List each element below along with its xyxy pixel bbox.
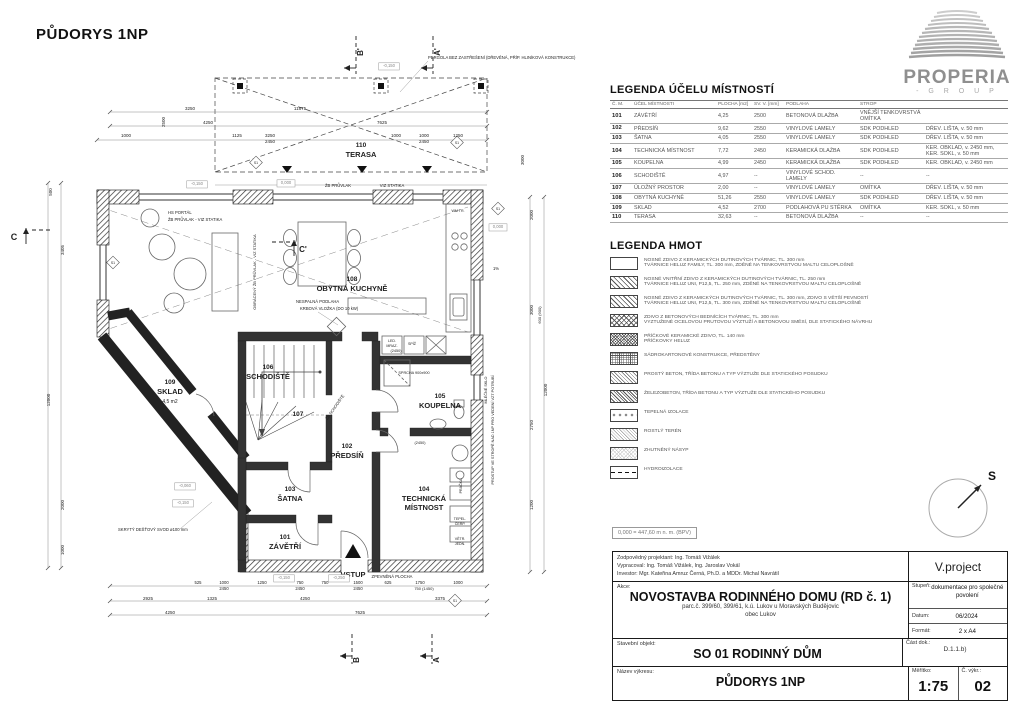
room-label-sklad: SKLAD [157, 387, 183, 396]
floor-plan: 110TERASA108OBYTNÁ KUCHYNĚ109SKLAD4,5 m2… [0, 0, 610, 724]
north-label: S [988, 469, 996, 483]
dim: 1000 [121, 133, 132, 138]
dim: 3000 [520, 154, 525, 165]
room-number-107: 107 [293, 411, 304, 418]
stage-label: Stupeň: [912, 583, 931, 607]
level-marker: -0,150 [383, 63, 396, 68]
stage-cell: Stupeň: dokumentace pro společné povolen… [909, 582, 1007, 609]
pat-grid-swatch [610, 352, 638, 365]
dining-table [298, 222, 346, 286]
room-number-103: 103 [285, 486, 296, 493]
room-label-technicka: TECHNICKÁ [402, 494, 447, 503]
drawing-name-value: PŮDORYS 1NP [617, 675, 904, 689]
dim: 750 [322, 580, 330, 585]
dim: 1250 [257, 580, 267, 585]
hmot-label: SÁDROKARTONOVÉ KONSTRUKCE, PŘEDSTĚNY [644, 352, 760, 358]
room-label-predsin: PŘEDSÍŇ [330, 451, 363, 460]
room-area-sklad: 4,5 m2 [162, 399, 178, 405]
mark-s1: S1 [453, 599, 457, 603]
dim: 2500 [161, 116, 166, 127]
hmot-label: ZDIVO Z BETONOVÝCH BEDNÍCÍCH TVÁRNIC, TL… [644, 314, 872, 326]
dim: 2450 [295, 586, 305, 591]
room-number-105: 105 [435, 393, 446, 400]
dim: 1500 [353, 580, 363, 585]
company-name: V.project [909, 552, 1007, 581]
hmot-item: NOSNÉ ZDIVO Z KERAMICKÝCH DUTINOVÝCH TVÁ… [610, 257, 910, 276]
legend-hmot-title: LEGENDA HMOT [610, 240, 702, 252]
section-b: B [352, 657, 361, 663]
dim: 2750 [529, 419, 534, 430]
note-zpevnena-plocha: ZPEVNĚNÁ PLOCHA [372, 574, 413, 579]
dim: 1325 [207, 596, 218, 601]
leader-lines [180, 312, 338, 529]
dim: 1000 [453, 580, 463, 585]
windows [100, 194, 480, 400]
note-obraceny-pruvlak: OBRÁCENÝ ŽB PRŮVLAK - VIZ STATIKA [252, 234, 257, 310]
dim: 750 [297, 580, 305, 585]
note-pruvlak-2: ŽB PRŮVLAK [325, 183, 351, 188]
dim: 525 [195, 580, 203, 585]
pat-hydro-swatch [610, 466, 638, 479]
dim: 3000 [529, 304, 534, 315]
level-marker: 0,000 [493, 224, 504, 229]
note-pruvlak: ŽB PRŮVLAK - VIZ STATIKA [168, 217, 222, 222]
note-2450-a: (2450) [391, 349, 403, 353]
legend-room-row: 109SKLAD4,522700PODLAHOVÁ PU STĚRKAOMÍTK… [610, 203, 1008, 213]
note-cerp: ČERP. [455, 521, 466, 526]
note-prostup: PROSTUP VE STROPĚ NAD 1NP PRO VEDENÍ VZT… [490, 375, 495, 485]
project-title: NOVOSTAVBA RODINNÉHO DOMU (RD č. 1) [617, 590, 904, 604]
hmot-label: HYDROIZOLACE [644, 466, 683, 472]
pat-empty-swatch [610, 257, 638, 270]
drawing-name-cell: Název výkresu: PŮDORYS 1NP [613, 667, 908, 700]
mark-s1: S1 [496, 207, 500, 211]
legend-col-header: PLOCHA [m2] [716, 101, 752, 109]
pat-teren-swatch [610, 428, 638, 441]
title-block-people: Zodpovědný projektant: Ing. Tomáš Vižále… [613, 552, 908, 581]
note-lednice: LED. [388, 339, 396, 343]
dim: 12000 [543, 383, 548, 396]
dim: 2925 [143, 596, 154, 601]
hmot-item: SÁDROKARTONOVÉ KONSTRUKCE, PŘEDSTĚNY [610, 352, 910, 371]
legend-room-row: 110TERASA32,63--BETONOVÁ DLAŽBA---- [610, 213, 1008, 223]
room-number-110: 110 [356, 142, 367, 149]
note-2450-b: (2450) [415, 441, 427, 445]
format-value: 2 x A4 [931, 628, 1004, 635]
date-label: Datum: [912, 613, 929, 619]
pergola-note: PERGOLA BEZ ZASTŘEŠENÍ (DŘEVĚNÁ, PŘÍP. H… [428, 55, 576, 60]
dim: 3250 [185, 106, 196, 111]
legend-room-row: 108OBYTNÁ KUCHYNĚ51,262550VINYLOVÉ LAMEL… [610, 193, 1008, 203]
pat-insul-swatch [610, 409, 638, 422]
legend-col-header: STROP [858, 101, 924, 109]
hmot-label: NOSNÉ VNITŘNÍ ZDIVO Z KERAMICKÝCH DUTINO… [644, 276, 861, 288]
scale-value: 1:75 [912, 674, 955, 699]
dim: 600 (900) [537, 306, 542, 324]
note-wm: WM TR. [451, 209, 464, 213]
room-number-104: 104 [419, 486, 430, 493]
note-sprcha: SPRCHA 900x900 [398, 371, 429, 375]
investor: Investor: Mgr. Kateřina Amruz Černá, Ph.… [617, 570, 904, 578]
pat-diag-swatch [610, 276, 638, 289]
hmot-label: NOSNÉ ZDIVO Z KERAMICKÝCH DUTINOVÝCH TVÁ… [644, 295, 868, 307]
level-marker: -0,150 [278, 575, 291, 580]
room-number-108: 108 [347, 276, 358, 283]
hmot-item: TEPELNÁ IZOLACE [610, 409, 910, 428]
legend-room-row: 107ÚLOŽNÝ PROSTOR2,00--VINYLOVÉ LAMELYOM… [610, 184, 1008, 194]
hmot-item: ZDIVO Z BETONOVÝCH BEDNÍCÍCH TVÁRNIC, TL… [610, 314, 910, 333]
section-c: C [11, 232, 18, 242]
dim: 12000 [46, 393, 51, 406]
kitchen-island [348, 298, 426, 314]
note-vetr: VĚTR. [455, 536, 466, 541]
dim: 1000 [60, 544, 65, 555]
level-marker: -0,150 [177, 500, 190, 505]
note-spiz: SPÍŽ [408, 341, 417, 346]
mark-s1: S1 [254, 161, 258, 165]
object-cell: Stavební objekt: SO 01 RODINNÝ DŮM [613, 639, 902, 666]
pat-rc-swatch [610, 390, 638, 403]
dim: 3250 [265, 133, 276, 138]
section-a: A [432, 657, 441, 663]
hmot-label: PŘÍČKOVÉ KERAMICKÉ ZDIVO, TL. 140 mmPŘÍČ… [644, 333, 744, 345]
room-label-schodiste: SCHODIŠTĚ [246, 372, 290, 381]
dim: 1000 [219, 580, 229, 585]
hmot-item: NOSNÉ ZDIVO Z KERAMICKÝCH DUTINOVÝCH TVÁ… [610, 295, 910, 314]
section-c-prime: C' [299, 245, 307, 254]
legend-hmot-list: NOSNÉ ZDIVO Z KERAMICKÝCH DUTINOVÝCH TVÁ… [610, 257, 910, 485]
sink [453, 298, 464, 316]
room-label-obytna-kuchyne: OBYTNÁ KUCHYNĚ [317, 284, 388, 293]
pat-cross-swatch [610, 314, 638, 327]
note-zb-schodiste: ŽB SCHODIŠTĚ [324, 393, 345, 420]
object-value: SO 01 RODINNÝ DŮM [617, 647, 898, 661]
dim: 750 (1450) [414, 586, 434, 591]
note-krb-1: NESPALNÁ PODLAHA [296, 299, 339, 304]
level-marker: -0,150 [191, 181, 204, 186]
sofa [212, 233, 238, 311]
note-mraznicka: MRAZ. [386, 344, 397, 348]
hmot-label: ZHUTNĚNÝ NÁSYP [644, 447, 689, 453]
legend-col-header: PODLAHA [784, 101, 858, 109]
dim: 4250 [300, 596, 311, 601]
level-note: 0,000 = 447,60 m n. m. (BPV) [612, 527, 697, 539]
hmot-item: PROSTÝ BETON, TŘÍDA BETONU A TYP VÝZTUŽE… [610, 371, 910, 390]
legend-room-row: 103ŠATNA4,052550VINYLOVÉ LAMELYSDK PODHL… [610, 134, 1008, 144]
room-label-terasa: TERASA [346, 150, 377, 159]
hmot-item: PŘÍČKOVÉ KERAMICKÉ ZDIVO, TL. 140 mmPŘÍČ… [610, 333, 910, 352]
project-parcel: parc.č. 399/60, 399/61, k.ú. Lukov u Mor… [617, 604, 904, 612]
logo-sub: - G R O U P [901, 88, 1013, 95]
note-jedn: JEDN. [455, 542, 465, 546]
drawing-number-value: 02 [962, 674, 1005, 699]
stage-value: dokumentace pro společné povolení [931, 583, 1004, 607]
slope-label: 1% [493, 266, 499, 271]
dim: 7625 [355, 610, 366, 615]
hmot-label: ŽELEZOBETON, TŘÍDA BETONU A TYP VÝZTUŽE … [644, 390, 825, 396]
project-cell: Akce: NOVOSTAVBA RODINNÉHO DOMU (RD č. 1… [613, 582, 908, 638]
format-cell: Formát: 2 x A4 [909, 624, 1007, 638]
hmot-label: NOSNÉ ZDIVO Z KERAMICKÝCH DUTINOVÝCH TVÁ… [644, 257, 854, 269]
room-number-106: 106 [263, 364, 274, 371]
mark-s1: S1 [111, 261, 115, 265]
dim: 2450 [265, 139, 276, 144]
level-marker: 0,000 [281, 180, 292, 185]
note-svod: SKRYTÝ DEŠŤOVÝ SVOD ø100 mm [118, 527, 188, 532]
section-b-prime: B' [356, 48, 365, 56]
drawing-number-cell: Č. výkr.: 02 [958, 667, 1008, 700]
date-value: 06/2024 [929, 613, 1004, 620]
dim: 1750 [415, 580, 425, 585]
washbasin [430, 419, 446, 429]
legend-col-header: Č. M. [610, 101, 632, 109]
legend-col-header: SV. V. [mm] [752, 101, 784, 109]
legend-col-header: ÚČEL MÍSTNOSTI [632, 101, 716, 109]
dim: 2450 [419, 139, 430, 144]
door-swings [288, 390, 398, 558]
pat-nasyp-swatch [610, 447, 638, 460]
section-a-prime: A' [433, 48, 442, 56]
hmot-item: ZHUTNĚNÝ NÁSYP [610, 447, 910, 466]
boiler [452, 445, 468, 461]
note-tepel: TEPEL. [454, 517, 466, 521]
opening-marks [107, 136, 505, 607]
legend-room-row: 102PŘEDSÍŇ9,622550VINYLOVÉ LAMELYSDK POD… [610, 124, 1008, 134]
level-marker: -0,250 [333, 575, 346, 580]
logo-name: PROPERIA [901, 68, 1013, 87]
dim: 11875 [294, 106, 307, 111]
legend-rooms-table: Č. M.ÚČEL MÍSTNOSTIPLOCHA [m2]SV. V. [mm… [610, 100, 1008, 223]
note-krb-2: KRBOVÁ VLOŽKA (DO 10 kW) [300, 306, 359, 311]
pat-diamond-swatch [610, 333, 638, 346]
dim: 625 [385, 580, 393, 585]
hmot-item: ROSTLÝ TERÉN [610, 428, 910, 447]
hmot-item: NOSNÉ VNITŘNÍ ZDIVO Z KERAMICKÝCH DUTINO… [610, 276, 910, 295]
responsible-designer: Zodpovědný projektant: Ing. Tomáš Vižále… [617, 554, 904, 562]
room-number-109: 109 [165, 379, 176, 386]
legend-rooms-tbody: 101ZÁVĚTŘÍ4,252500BETONOVÁ DLAŽBAVNĚJŠÍ … [610, 109, 1008, 223]
dim: 2000 [529, 209, 534, 220]
properia-logo-mark [901, 10, 1013, 62]
format-label: Formát: [912, 628, 931, 634]
prepared-by: Vypracoval: Ing. Tomáš Vižálek, Ing. Jar… [617, 562, 904, 570]
dim: 1000 [419, 133, 430, 138]
date-cell: Datum: 06/2024 [909, 609, 1007, 624]
pat-diagfine-swatch [610, 371, 638, 384]
project-municipality: obec Lukov [617, 612, 904, 620]
dim: 4250 [165, 610, 176, 615]
level-marker: -0,060 [179, 483, 192, 488]
room-label-mistnost: MÍSTNOST [405, 503, 444, 512]
legend-room-row: 104TECHNICKÁ MÍSTNOST7,722450KERAMICKÁ D… [610, 143, 1008, 158]
room-label-koupelna: KOUPELNA [419, 401, 462, 410]
dim: 500 [48, 188, 53, 196]
dim: 1200 [529, 499, 534, 510]
legend-room-row: 106SCHODIŠTĚ4,97--VINYLOVÉ SCHOD. LAMELY… [610, 168, 1008, 183]
legend-room-row: 101ZÁVĚTŘÍ4,252500BETONOVÁ DLAŽBAVNĚJŠÍ … [610, 109, 1008, 124]
dim: 3375 [435, 596, 446, 601]
room-label-zavetri: ZÁVĚTŘÍ [269, 542, 302, 551]
dim: 7625 [377, 120, 388, 125]
hmot-item: HYDROIZOLACE [610, 466, 910, 485]
staircase [246, 345, 326, 440]
pat-diag-swatch [610, 295, 638, 308]
legend-rooms-title: LEGENDA ÚČELU MÍSTNOSTÍ [610, 84, 774, 96]
properia-logo: PROPERIA - G R O U P [901, 10, 1013, 95]
legend-col-header [924, 101, 1008, 109]
room-number-101: 101 [280, 534, 291, 541]
hmot-label: PROSTÝ BETON, TŘÍDA BETONU A TYP VÝZTUŽE… [644, 371, 828, 377]
dim: 1125 [232, 133, 242, 138]
title-block: Zodpovědný projektant: Ing. Tomáš Vižále… [612, 551, 1008, 701]
dim: 3405 [60, 244, 65, 255]
hmot-item: ŽELEZOBETON, TŘÍDA BETONU A TYP VÝZTUŽE … [610, 390, 910, 409]
hmot-label: ROSTLÝ TERÉN [644, 428, 681, 434]
hmot-label: TEPELNÁ IZOLACE [644, 409, 689, 415]
note-pracka: PRAČKA [458, 478, 463, 493]
scale-cell: Měřítko: 1:75 [909, 667, 958, 700]
dim: 1000 [391, 133, 402, 138]
dim: 4250 [203, 120, 214, 125]
legend-rooms-header: Č. M.ÚČEL MÍSTNOSTIPLOCHA [m2]SV. V. [mm… [610, 101, 1008, 109]
room-label-satna: ŠATNA [277, 494, 303, 503]
room-number-102: 102 [342, 443, 353, 450]
drawing-sheet: PŮDORYS 1NP [0, 0, 1024, 724]
dim: 2000 [60, 499, 65, 510]
mark-s1: S1 [455, 141, 459, 145]
north-arrow: S [918, 460, 1010, 552]
entrance-arrow [345, 544, 361, 558]
outer-walls [97, 190, 483, 572]
dim: 2450 [219, 586, 229, 591]
dim: 1250 [453, 133, 464, 138]
dim: 2450 [353, 586, 363, 591]
note-mlecne-sklo: MLÉČNÉ SKLO [483, 376, 488, 403]
note-hs-portal: HS PORTÁL [168, 210, 192, 215]
washing-machine [456, 471, 464, 479]
note-viz-statika: VIZ STATIKA [380, 183, 405, 188]
doc-part-value: D.1.1.b) [906, 646, 1004, 654]
legend-room-row: 105KOUPELNA4,992450KERAMICKÁ DLAŽBASDK P… [610, 159, 1008, 169]
